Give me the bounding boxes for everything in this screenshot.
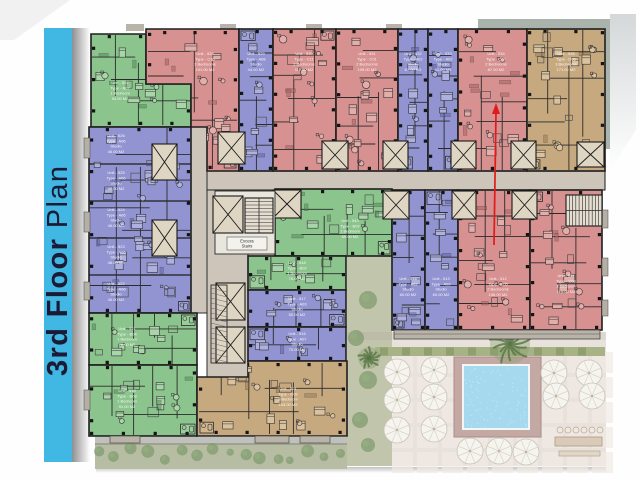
svg-text:Unit - 530Type - C112 Bedrooms: Unit - 530Type - C112 Bedrooms112.00 M2 [293, 51, 315, 72]
svg-text:Unit - 512Type - C052 Bedrooms: Unit - 512Type - C052 Bedrooms106.00 M2 [487, 276, 509, 297]
svg-text:Unit - 519Type - B081 Bedroom9: Unit - 519Type - B081 Bedroom91.00 M2 [117, 388, 137, 409]
svg-text:ExcessStairs: ExcessStairs [240, 239, 254, 249]
svg-text:Unit - 528Type - C102 Bedrooms: Unit - 528Type - C102 Bedrooms101.00 M2 [194, 51, 216, 72]
svg-text:Unit - 521Type - B041 Bedroom7: Unit - 521Type - B041 Bedroom76.00 M2 [117, 326, 137, 347]
svg-text:Unit - 518Type - B021 Bedroom7: Unit - 518Type - B021 Bedroom76.00 M2 [287, 260, 307, 281]
svg-text:Unit - 527Type - B071 Bedroom9: Unit - 527Type - B071 Bedroom94.00 M2 [110, 80, 130, 101]
svg-text:Unit - 535Type - D053 Bedrooms: Unit - 535Type - D053 Bedrooms171.00 M2 [555, 51, 577, 72]
svg-text:Unit - 543Type - B021 Bedroom6: Unit - 543Type - B021 Bedroom69.00 M2 [340, 218, 360, 239]
svg-text:Unit - 534Type - C072 Bedrooms: Unit - 534Type - C072 Bedrooms87.00 M2 [485, 51, 507, 72]
svg-text:Unit - 501Type - D023 Bedroom1: Unit - 501Type - D023 Bedroom143.00 M2 [278, 386, 298, 407]
svg-text:3rd Floor Plan: 3rd Floor Plan [42, 165, 74, 376]
svg-text:Unit - 531Type - C012 Bedrooms: Unit - 531Type - C012 Bedrooms109.00 M2 [356, 51, 378, 72]
svg-text:Unit - 511Type - C082 bedroom1: Unit - 511Type - C082 bedroom110.00 M2 [556, 273, 576, 294]
